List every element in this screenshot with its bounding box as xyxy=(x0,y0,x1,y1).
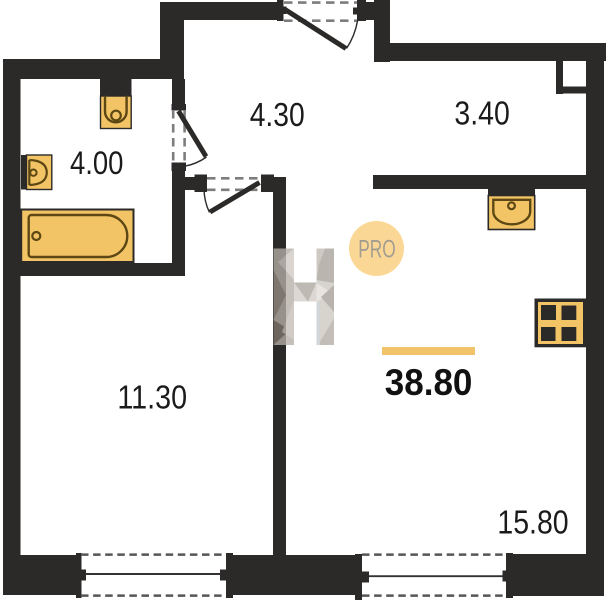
svg-text:4.30: 4.30 xyxy=(250,96,305,133)
svg-text:15.80: 15.80 xyxy=(497,504,568,541)
svg-text:38.80: 38.80 xyxy=(385,362,473,403)
svg-text:3.40: 3.40 xyxy=(454,95,509,132)
svg-text:PRO: PRO xyxy=(358,236,396,264)
svg-text:4.00: 4.00 xyxy=(70,145,124,181)
svg-text:11.30: 11.30 xyxy=(117,379,187,416)
